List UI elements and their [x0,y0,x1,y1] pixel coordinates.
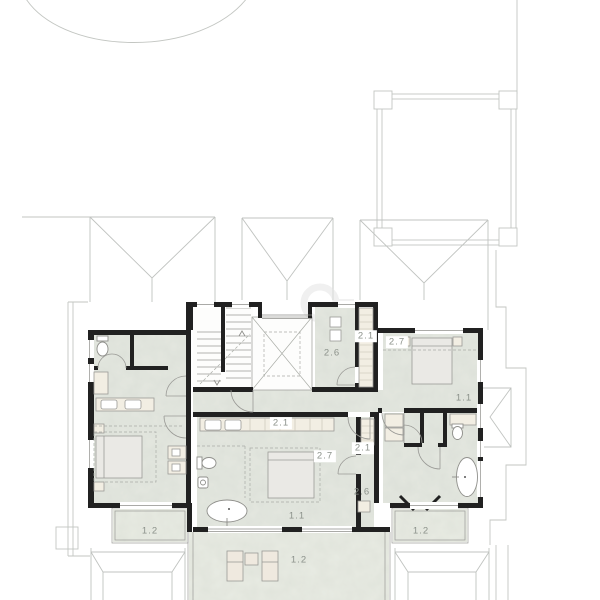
void-skylight [252,317,312,390]
nightstand [401,337,410,346]
closet-box [450,414,476,425]
roof-bottom-right [395,548,489,600]
toilet-right-bathroom [452,424,463,440]
closet-shelves-top [359,308,373,387]
lounger [227,551,243,581]
driveway-arc [22,0,250,43]
closet-column-box [358,501,370,512]
closet-box [385,414,403,427]
nightstand [94,482,104,491]
roof-bottom-left [91,548,185,600]
side-table [245,553,258,565]
toilet-master [197,457,216,469]
nightstand [453,337,462,346]
closet-column-shelves [361,419,374,445]
storage-box [330,330,341,341]
lounger [262,551,278,581]
pergola [374,91,517,246]
bed-left [96,436,142,478]
sink-left-2 [125,400,141,409]
bath-left-cabinet [94,372,108,394]
floor-plan-page: 2.62.12.71.12.12.62.12.71.11.21.21.2 [0,0,600,600]
bidet-master [198,477,208,488]
sink-left-1 [101,400,117,409]
storage-box [330,317,341,327]
toilet-left-bathroom [97,336,108,356]
dormer-right [483,388,511,447]
sink-master-2 [225,420,241,430]
bed-master [268,452,314,498]
floor-plan-svg [0,0,600,600]
bed-right [412,338,452,384]
sink-master-1 [205,420,221,430]
roof-left [90,217,215,302]
